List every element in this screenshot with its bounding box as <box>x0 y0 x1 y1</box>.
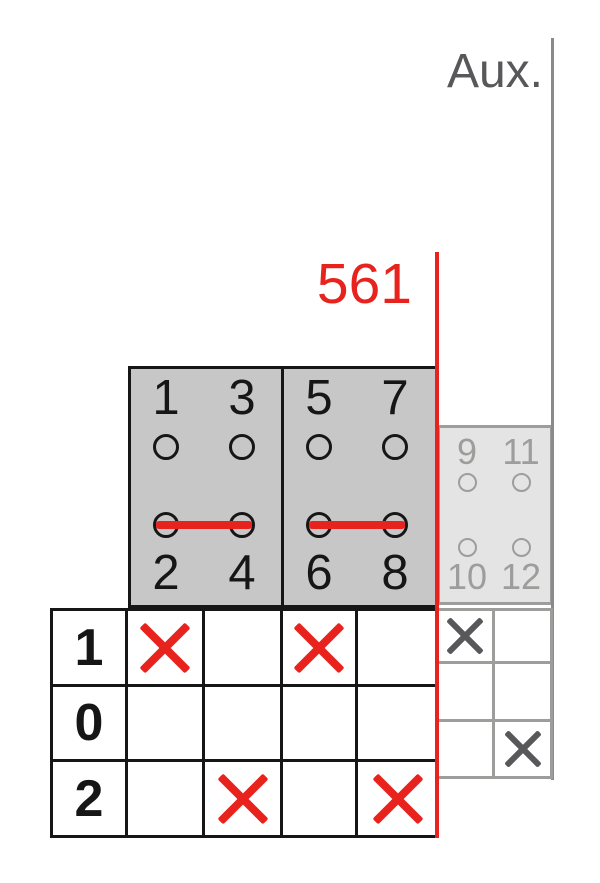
terminal-number-5: 5 <box>287 373 351 423</box>
table-cell-r0-c2 <box>283 611 358 687</box>
aux-table-cell-r2-c0 <box>437 722 495 776</box>
aux-table-cell-r0-c0 <box>437 611 495 664</box>
table-cell-r0-c1 <box>205 611 283 687</box>
row-label-0: 0 <box>75 697 104 749</box>
switching-diagram: Aux. 561 13245768 9111012 102 <box>0 0 600 883</box>
aux-x-mark-r0-c0 <box>448 619 482 653</box>
switch-561-vertical-line <box>435 252 439 838</box>
contact-circle-1 <box>153 434 179 460</box>
aux-contact-circle-11 <box>512 473 531 492</box>
aux-contact-circle-10 <box>458 538 477 557</box>
aux-position-table <box>437 608 553 779</box>
table-cell-r2-c0 <box>128 762 205 835</box>
contact-circle-7 <box>382 434 408 460</box>
contact-circle-5 <box>306 434 332 460</box>
table-cell-r1-c3 <box>358 687 437 762</box>
contact-bridge-2-4 <box>156 521 252 529</box>
row-label-cell-0: 0 <box>53 687 128 762</box>
x-mark-r0-c0 <box>142 625 188 671</box>
terminal-number-6: 6 <box>287 548 351 598</box>
terminal-number-4: 4 <box>210 548 274 598</box>
aux-terminal-number-10: 10 <box>439 558 495 596</box>
aux-table-cell-r0-c1 <box>495 611 550 664</box>
aux-contact-circle-12 <box>512 538 531 557</box>
terminal-number-2: 2 <box>134 548 198 598</box>
aux-table-cell-r1-c1 <box>495 664 550 722</box>
table-cell-r0-c3 <box>358 611 437 687</box>
main-contact-block-divider <box>281 366 284 608</box>
row-label-cell-2: 2 <box>53 762 128 835</box>
x-mark-r2-c3 <box>375 776 421 822</box>
terminal-number-8: 8 <box>363 548 427 598</box>
x-mark-r2-c1 <box>220 776 266 822</box>
terminal-number-1: 1 <box>134 373 198 423</box>
aux-table-cell-r2-c1 <box>495 722 550 776</box>
table-cell-r1-c1 <box>205 687 283 762</box>
table-cell-r2-c2 <box>283 762 358 835</box>
row-label-1: 1 <box>75 622 104 674</box>
table-cell-r2-c3 <box>358 762 437 835</box>
terminal-number-7: 7 <box>363 373 427 423</box>
table-cell-r0-c0 <box>128 611 205 687</box>
row-label-2: 2 <box>75 773 104 825</box>
table-cell-r2-c1 <box>205 762 283 835</box>
aux-contact-circle-9 <box>458 473 477 492</box>
main-position-table: 102 <box>50 608 437 838</box>
switch-number-label: 561 <box>317 256 412 313</box>
aux-terminal-number-9: 9 <box>439 433 495 471</box>
table-cell-r1-c0 <box>128 687 205 762</box>
contact-bridge-6-8 <box>309 521 405 529</box>
aux-label: Aux. <box>447 48 543 96</box>
aux-table-cell-r1-c0 <box>437 664 495 722</box>
aux-terminal-number-12: 12 <box>493 558 549 596</box>
x-mark-r0-c2 <box>296 625 342 671</box>
aux-x-mark-r2-c1 <box>506 732 540 766</box>
terminal-number-3: 3 <box>210 373 274 423</box>
table-cell-r1-c2 <box>283 687 358 762</box>
contact-circle-3 <box>229 434 255 460</box>
row-label-cell-1: 1 <box>53 611 128 687</box>
aux-terminal-number-11: 11 <box>493 433 549 471</box>
